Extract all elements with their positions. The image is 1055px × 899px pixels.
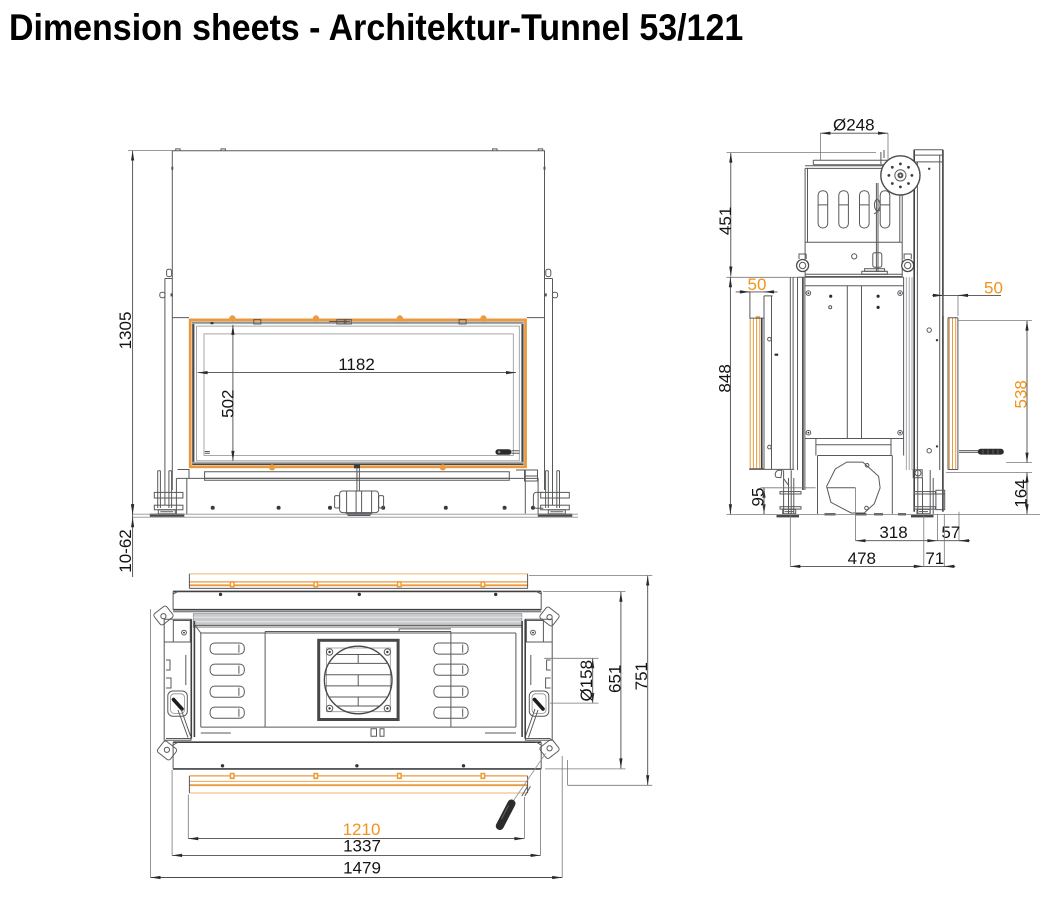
svg-text:71: 71 xyxy=(925,549,944,568)
svg-text:1337: 1337 xyxy=(343,837,381,856)
svg-text:1479: 1479 xyxy=(343,859,381,878)
svg-text:751: 751 xyxy=(632,662,651,690)
svg-text:Ø158: Ø158 xyxy=(577,660,596,702)
svg-text:1182: 1182 xyxy=(338,355,375,374)
svg-text:502: 502 xyxy=(219,390,238,418)
svg-text:50: 50 xyxy=(984,278,1003,297)
svg-text:50: 50 xyxy=(748,275,767,294)
svg-text:1305: 1305 xyxy=(116,312,135,350)
svg-text:95: 95 xyxy=(748,488,767,507)
svg-text:651: 651 xyxy=(605,665,624,693)
svg-text:Ø248: Ø248 xyxy=(833,116,875,135)
svg-text:848: 848 xyxy=(716,364,735,392)
svg-text:451: 451 xyxy=(716,207,735,235)
svg-text:318: 318 xyxy=(879,523,907,542)
svg-text:478: 478 xyxy=(848,549,876,568)
svg-text:164: 164 xyxy=(1011,479,1030,507)
svg-text:538: 538 xyxy=(1011,380,1030,408)
svg-text:10-62: 10-62 xyxy=(116,529,135,572)
